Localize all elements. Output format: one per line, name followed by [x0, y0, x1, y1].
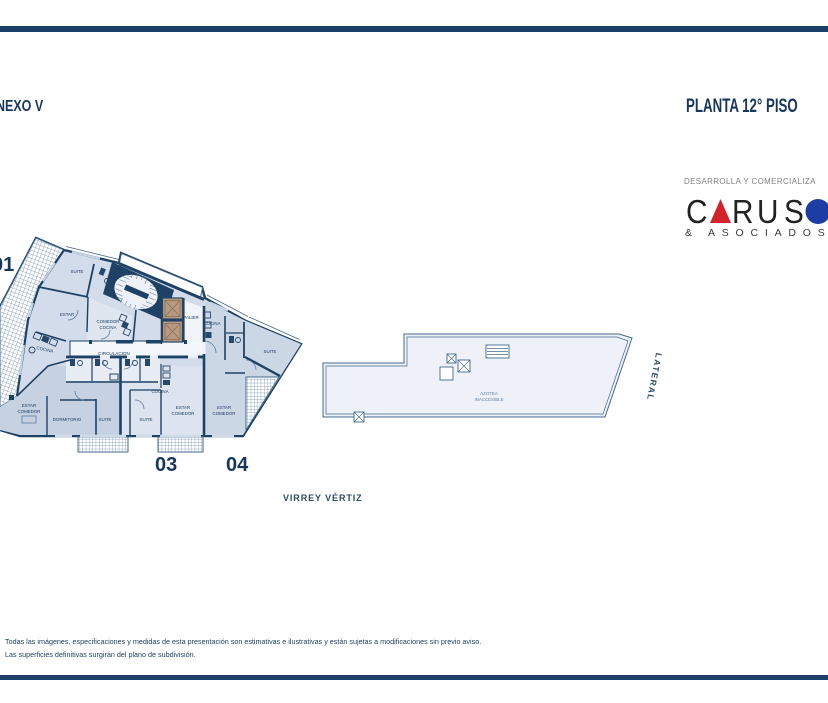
svg-text:COMEDOR: COMEDOR: [18, 409, 41, 414]
svg-text:SUITE: SUITE: [99, 417, 112, 422]
svg-text:ESTAR: ESTAR: [60, 312, 74, 317]
svg-text:01: 01: [0, 254, 14, 276]
svg-text:COCINA: COCINA: [99, 325, 116, 330]
svg-text:CIRCULACION: CIRCULACION: [98, 351, 130, 356]
svg-text:SUITE: SUITE: [264, 349, 277, 354]
svg-text:COMEDOR: COMEDOR: [172, 411, 195, 416]
svg-text:ESTAR: ESTAR: [217, 405, 231, 410]
svg-text:AZOTEA: AZOTEA: [480, 391, 498, 396]
svg-text:PALIER: PALIER: [183, 315, 198, 320]
svg-text:SUITE: SUITE: [140, 417, 153, 422]
svg-text:COMEDOR: COMEDOR: [97, 319, 120, 324]
svg-text:04: 04: [226, 454, 249, 476]
svg-text:03: 03: [155, 454, 177, 476]
svg-text:COMEDOR: COMEDOR: [213, 411, 236, 416]
svg-text:SUITE: SUITE: [71, 269, 84, 274]
svg-text:ESTAR: ESTAR: [176, 405, 190, 410]
svg-text:COCINA: COCINA: [203, 321, 220, 326]
svg-text:COCINA: COCINA: [151, 389, 168, 394]
svg-text:ESTAR: ESTAR: [22, 403, 36, 408]
svg-text:DORMITORIO: DORMITORIO: [53, 417, 82, 422]
svg-text:INACCESIBLE: INACCESIBLE: [474, 397, 503, 402]
